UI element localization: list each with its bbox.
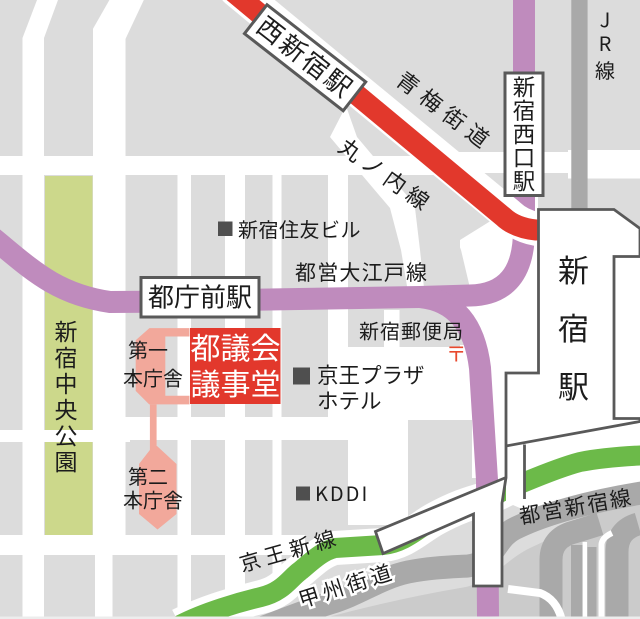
svg-text:宿: 宿 bbox=[558, 304, 589, 349]
svg-text:KDDI: KDDI bbox=[315, 478, 369, 507]
svg-text:議事堂: 議事堂 bbox=[191, 360, 281, 404]
svg-text:第一: 第一 bbox=[128, 335, 168, 364]
svg-text:ホテル: ホテル bbox=[317, 385, 382, 416]
svg-text:本庁舎: 本庁舎 bbox=[123, 485, 183, 514]
svg-text:本庁舎: 本庁舎 bbox=[123, 363, 183, 392]
svg-text:都営大江戸線: 都営大江戸線 bbox=[295, 257, 428, 287]
svg-text:園: 園 bbox=[55, 443, 78, 477]
svg-text:新宿住友ビル: 新宿住友ビル bbox=[238, 214, 361, 243]
svg-text:R: R bbox=[599, 28, 612, 57]
svg-text:新: 新 bbox=[558, 246, 589, 291]
svg-text:駅: 駅 bbox=[513, 165, 536, 197]
svg-text:都庁前駅: 都庁前駅 bbox=[148, 278, 252, 315]
svg-text:〒: 〒 bbox=[446, 338, 467, 368]
svg-text:線: 線 bbox=[595, 55, 615, 84]
svg-text:駅: 駅 bbox=[558, 362, 589, 407]
